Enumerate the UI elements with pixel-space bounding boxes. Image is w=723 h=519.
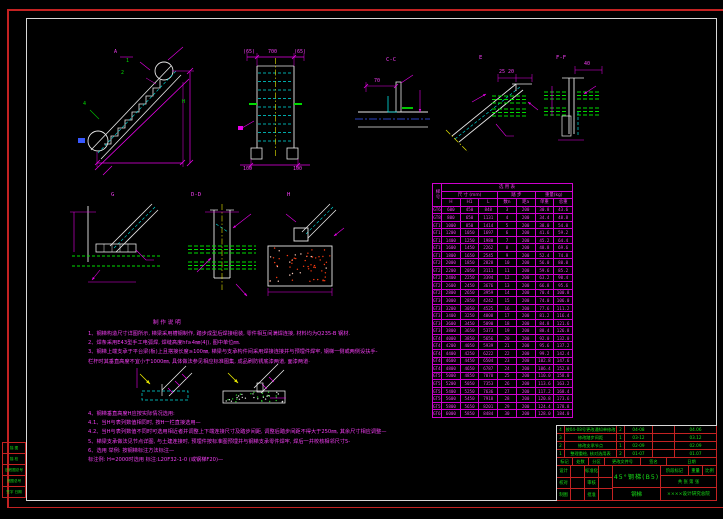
table-cell: 16: [498, 304, 517, 312]
table-cell: 4450: [460, 357, 479, 365]
table-cell: 6: [498, 229, 517, 237]
drawing-sheet: A 1 2 4 H (65) 700 (65) 100 100 C-C E F-…: [0, 0, 723, 519]
table-row: GT202000185028281020056.080.0: [433, 259, 573, 267]
sheet-count: 共 张 第 张: [661, 476, 717, 488]
detail-e: [446, 74, 538, 152]
table-cell: 200: [516, 229, 535, 237]
ladder-elevation-view: [78, 47, 194, 175]
table-cell: 29: [498, 402, 517, 410]
signature-cell: [571, 478, 585, 490]
table-cell: GT38: [433, 327, 442, 335]
table-col-header: 数n: [498, 199, 517, 207]
revision-row: 2修改支承节点102-0902.09: [557, 442, 717, 450]
table-cell: 6787: [479, 365, 498, 373]
table-cell: 3676: [479, 282, 498, 290]
revision-cell: 03-12: [625, 434, 653, 442]
table-cell: 2000: [442, 259, 461, 267]
dim-e: 25 20: [499, 70, 514, 75]
table-cell: 1414: [479, 221, 498, 229]
change-header-cell: 签名: [641, 458, 667, 466]
revision-cell: 03.12: [675, 434, 717, 442]
revision-cell: 4: [557, 426, 565, 434]
table-cell: 200: [516, 357, 535, 365]
table-cell: 200: [516, 342, 535, 350]
revision-cell: 01.07: [675, 450, 717, 458]
front-bottom-dim-right: 100: [293, 167, 302, 172]
table-cell: 2850: [460, 297, 479, 305]
revision-row: 1整理重绘, 核对选用表201-0701.07: [557, 450, 717, 458]
table-cell: 21: [498, 342, 517, 350]
table-cell: 81.2: [535, 312, 554, 320]
table-side-title: 梯号: [433, 184, 442, 207]
table-cell: 2600: [442, 282, 461, 290]
table-cell: 52.4: [535, 251, 554, 259]
revision-cell: [653, 442, 675, 450]
table-cell: 5650: [460, 402, 479, 410]
table-row: GT88006501131420034.448.8: [433, 214, 573, 222]
table-cell: 95.6: [554, 282, 573, 290]
table-cell: 1450: [460, 244, 479, 252]
table-cell: 5800: [442, 402, 461, 410]
table-cell: 200: [516, 327, 535, 335]
table-cell: GT46: [433, 357, 442, 365]
table-cell: 4000: [442, 334, 461, 342]
table-cell: 54.0: [554, 221, 573, 229]
table-cell: 3: [498, 206, 517, 214]
table-row: GT363600345050901820084.8121.6: [433, 319, 573, 327]
table-cell: 137.2: [554, 342, 573, 350]
stage-mark-label: 阶段标记: [661, 466, 689, 476]
table-cell: 848: [479, 206, 498, 214]
table-cell: 30: [498, 410, 517, 418]
table-col-header: L: [479, 199, 498, 207]
table-cell: 2828: [479, 259, 498, 267]
margin-row: 旧底图总号: [3, 465, 25, 476]
table-cell: GT12: [433, 229, 442, 237]
detail-label-e: E: [479, 56, 482, 61]
table-cell: 6222: [479, 350, 498, 358]
table-cell: 158.0: [554, 372, 573, 380]
table-cell: GT40: [433, 334, 442, 342]
front-top-dim-right: (65): [294, 50, 306, 55]
signature-cell: 校对: [557, 478, 571, 490]
table-cell: 200: [516, 221, 535, 229]
signature-cell: 审核: [585, 478, 599, 490]
note-line: 2、焊条采用E43型手工电弧焊, 焊缝高度hf≥4㎜(4|), 图中单位㎜.: [88, 339, 377, 348]
table-cell: 168.4: [554, 387, 573, 395]
table-cell: 74.8: [554, 251, 573, 259]
table-cell: 1000: [442, 221, 461, 229]
note-line: 4.2、当H与表列数值不同时可选用相近者并调整上下端连接尺寸及踏步间距, 调整后…: [88, 428, 386, 437]
height-dim-label: H: [182, 100, 185, 105]
signature-cell: [599, 466, 613, 478]
drawing-subtitle: 钢梯: [613, 488, 661, 501]
table-cell: 6504: [479, 357, 498, 365]
table-cell: 124.4: [535, 402, 554, 410]
table-row: GT6600450848320030.843.6: [433, 206, 573, 214]
balloon-2: 2: [121, 71, 124, 76]
note-sketch-lower-support: [223, 364, 286, 403]
table-row: GT303000285042421520074.0106.0: [433, 297, 573, 305]
table-cell: 4600: [442, 357, 461, 365]
table-col-header: 总重: [554, 199, 573, 207]
table-cell: 6000: [442, 410, 461, 418]
table-cell: 90.4: [554, 274, 573, 282]
table-row: GT1010008501414520038.054.0: [433, 221, 573, 229]
signature-cell: 设计: [557, 466, 571, 478]
table-group-steps: 踏 步: [498, 191, 535, 199]
table-cell: GT16: [433, 244, 442, 252]
revision-cell: 02-09: [625, 442, 653, 450]
table-cell: 2050: [460, 267, 479, 275]
table-cell: GT58: [433, 402, 442, 410]
table-cell: 5000: [442, 372, 461, 380]
scale-label: 比例: [703, 466, 717, 476]
table-cell: 5400: [442, 387, 461, 395]
table-cell: 56.0: [535, 259, 554, 267]
dim-cc: 70: [374, 79, 380, 84]
table-row: GT424200405059392120095.6137.2: [433, 342, 573, 350]
table-cell: 1050: [460, 229, 479, 237]
table-cell: 26: [498, 380, 517, 388]
table-row: GT5454005250763627200117.2168.4: [433, 387, 573, 395]
table-cell: 200: [516, 334, 535, 342]
table-cell: 13: [498, 282, 517, 290]
detail-section-ff: [544, 66, 602, 140]
table-cell: 5850: [460, 410, 479, 418]
table-row: GT282800265039591420070.4100.8: [433, 289, 573, 297]
table-cell: 4: [498, 214, 517, 222]
note-line: 3、钢梯上端支承于平台梁(板)上且搭接长度≥100㎜, 梯梁与支承构件间采用焊接…: [88, 348, 377, 357]
table-cell: 59.6: [535, 267, 554, 275]
table-cell: 4525: [479, 304, 498, 312]
change-header-cell: 分区: [589, 458, 605, 466]
table-cell: 3400: [442, 312, 461, 320]
table-cell: GT10: [433, 221, 442, 229]
detail-h: [268, 204, 344, 296]
table-cell: 5450: [460, 395, 479, 403]
table-cell: 2400: [442, 274, 461, 282]
table-cell: 5656: [479, 334, 498, 342]
table-cell: 74.0: [535, 297, 554, 305]
table-cell: 38.0: [535, 221, 554, 229]
table-cell: 2450: [460, 282, 479, 290]
margin-row: 底图总号: [3, 476, 25, 487]
table-cell: 200: [516, 380, 535, 388]
front-top-dim-mid: 700: [268, 50, 277, 55]
table-cell: 85.2: [554, 267, 573, 275]
table-cell: GT26: [433, 282, 442, 290]
notes-section-2: 4、钢梯垂直高度H应按实际情况选用:4.1、当H与表列数值相同时, 按H一栏直接…: [88, 410, 386, 465]
table-cell: 200: [516, 350, 535, 358]
table-cell: 5250: [460, 387, 479, 395]
table-cell: 25: [498, 372, 517, 380]
note-line: 6、选用 举例: 按钢梯标注方法标注—: [88, 447, 386, 456]
table-cell: 173.6: [554, 395, 573, 403]
note-line: 4.1、当H与表列数值相同时, 按H一栏直接选用—: [88, 419, 386, 428]
table-col-header: 单重: [535, 199, 554, 207]
table-cell: GT36: [433, 319, 442, 327]
table-cell: GT6: [433, 206, 442, 214]
table-cell: 24: [498, 365, 517, 373]
table-cell: 95.6: [535, 342, 554, 350]
table-cell: 7070: [479, 372, 498, 380]
table-cell: 200: [516, 214, 535, 222]
table-row: GT4848004650678724200106.4152.8: [433, 365, 573, 373]
table-cell: 2800: [442, 289, 461, 297]
table-cell: 3959: [479, 289, 498, 297]
table-cell: 800: [442, 214, 461, 222]
table-cell: 48.8: [554, 214, 573, 222]
revision-cell: 修改踏步间距: [565, 434, 617, 442]
revision-row: 4按04-08号更改通知单修改204-0804.06: [557, 426, 717, 434]
table-cell: 121.6: [554, 319, 573, 327]
table-cell: 17: [498, 312, 517, 320]
ladder-front-view: [238, 53, 310, 169]
table-cell: GT32: [433, 304, 442, 312]
note-line: 4、钢梯垂直高度H应按实际情况选用:: [88, 410, 386, 419]
table-cell: 3650: [460, 327, 479, 335]
table-cell: 5200: [442, 380, 461, 388]
table-cell: 102.8: [535, 357, 554, 365]
table-cell: GT52: [433, 380, 442, 388]
table-cell: 1697: [479, 229, 498, 237]
table-cell: 2262: [479, 244, 498, 252]
table-cell: 20: [498, 334, 517, 342]
table-cell: 126.8: [554, 327, 573, 335]
table-cell: 117.2: [535, 387, 554, 395]
table-cell: 200: [516, 319, 535, 327]
table-cell: GT18: [433, 251, 442, 259]
table-row: GT14140012501980720045.264.4: [433, 236, 573, 244]
note-line: 5、梯梁支承做法见节点详图, 与土建连接时, 预埋件按标准图预埋并与钢梯支承零件…: [88, 438, 386, 447]
table-cell: 142.4: [554, 350, 573, 358]
table-cell: 2545: [479, 251, 498, 259]
table-cell: 11: [498, 267, 517, 275]
table-cell: 184.0: [554, 410, 573, 418]
signature-cell: 批准: [585, 489, 599, 501]
table-cell: 3600: [442, 319, 461, 327]
signature-cell: [571, 466, 585, 478]
table-cell: 4800: [442, 365, 461, 373]
balloon-4: 4: [83, 102, 86, 107]
table-cell: 84.8: [535, 319, 554, 327]
signature-cell: [599, 489, 613, 501]
table-cell: GT54: [433, 387, 442, 395]
balloon-1: 1: [126, 59, 129, 64]
signature-cell: [599, 478, 613, 490]
detail-label-g: G: [111, 193, 114, 198]
table-cell: 5090: [479, 319, 498, 327]
revision-cell: 04-08: [625, 426, 653, 434]
drawing-title: 45°钢梯(B5): [613, 466, 661, 488]
table-cell: 5050: [460, 380, 479, 388]
table-cell: 99.2: [535, 350, 554, 358]
table-cell: 3200: [442, 304, 461, 312]
revision-cell: 修改支承节点: [565, 442, 617, 450]
section-label-cc: C-C: [386, 58, 396, 63]
revision-row: 3修改踏步间距103-1203.12: [557, 434, 717, 442]
revision-cell: 04.06: [675, 426, 717, 434]
notes-heading: 制 作 说 明: [153, 318, 181, 326]
dim-ff: 40: [584, 62, 590, 67]
revision-cell: 2: [617, 450, 625, 458]
revision-cell: 3: [557, 434, 565, 442]
selection-table: 梯号 选 用 表 尺 寸 (mm) 踏 步 重量(kg) HH1L数n距a单重总…: [432, 183, 573, 418]
change-header-cell: 处数: [573, 458, 589, 466]
table-cell: 23: [498, 357, 517, 365]
margin-row: 描 图: [3, 443, 25, 454]
table-cell: 4242: [479, 297, 498, 305]
change-header-cell: 标记: [557, 458, 573, 466]
table-cell: 3111: [479, 267, 498, 275]
table-row: GT5252005050735326200113.6163.2: [433, 380, 573, 388]
table-cell: 152.8: [554, 365, 573, 373]
table-cell: 63.2: [535, 274, 554, 282]
table-cell: 8201: [479, 402, 498, 410]
table-cell: 200: [516, 206, 535, 214]
table-cell: 3850: [460, 334, 479, 342]
table-cell: 19: [498, 327, 517, 335]
table-cell: 650: [460, 214, 479, 222]
table-cell: 3050: [460, 304, 479, 312]
table-cell: 4808: [479, 312, 498, 320]
signature-cell: [571, 489, 585, 501]
table-cell: 200: [516, 304, 535, 312]
table-row: GT404000385056562020092.0132.0: [433, 334, 573, 342]
table-cell: 30.8: [535, 206, 554, 214]
table-cell: 1131: [479, 214, 498, 222]
table-cell: 106.4: [535, 365, 554, 373]
table-cell: 9: [498, 251, 517, 259]
table-cell: GT60: [433, 410, 442, 418]
table-row: GT6060005850848430200128.0184.0: [433, 410, 573, 418]
table-cell: 48.8: [535, 244, 554, 252]
detail-label-h: H: [287, 193, 290, 198]
table-cell: 41.6: [535, 229, 554, 237]
table-cell: 100.8: [554, 289, 573, 297]
table-cell: 8: [498, 244, 517, 252]
revision-cell: 整理重绘, 核对选用表: [565, 450, 617, 458]
table-cell: 1650: [460, 251, 479, 259]
table-cell: 80.0: [554, 259, 573, 267]
table-cell: 450: [460, 206, 479, 214]
revision-cell: [653, 426, 675, 434]
table-cell: 27: [498, 387, 517, 395]
table-row: GT383800365053731920088.4126.8: [433, 327, 573, 335]
table-cell: GT42: [433, 342, 442, 350]
table-cell: 113.6: [535, 380, 554, 388]
table-group-weight: 重量(kg): [535, 191, 572, 199]
revision-cell: 02.09: [675, 442, 717, 450]
table-cell: 10: [498, 259, 517, 267]
table-cell: 600: [442, 206, 461, 214]
table-row: GT5656005450791828200120.8173.6: [433, 395, 573, 403]
table-cell: 200: [516, 395, 535, 403]
table-cell: 4650: [460, 365, 479, 373]
table-cell: 12: [498, 274, 517, 282]
table-cell: 4850: [460, 372, 479, 380]
selection-table-body: GT6600450848320030.843.6GT88006501131420…: [433, 206, 573, 417]
table-cell: 111.2: [554, 304, 573, 312]
table-cell: 1200: [442, 229, 461, 237]
table-cell: 200: [516, 387, 535, 395]
table-row: GT5050004850707025200110.0158.0: [433, 372, 573, 380]
detail-section-cc: [355, 75, 430, 127]
table-cell: 200: [516, 402, 535, 410]
table-cell: 5: [498, 221, 517, 229]
table-cell: 200: [516, 259, 535, 267]
table-cell: 18: [498, 319, 517, 327]
table-cell: 2650: [460, 289, 479, 297]
table-cell: 178.8: [554, 402, 573, 410]
notes-section-1: 1、钢梯构造尺寸详图所示, 梯梁采用槽钢制作, 踏步成型后焊接组装, 零件相互间…: [88, 330, 377, 367]
revision-cell: 1: [557, 450, 565, 458]
table-cell: GT56: [433, 395, 442, 403]
table-cell: 3394: [479, 274, 498, 282]
title-block: 4按04-08号更改通知单修改204-0804.063修改踏步间距103-120…: [556, 425, 716, 500]
table-col-header: 距a: [516, 199, 535, 207]
table-cell: 163.2: [554, 380, 573, 388]
table-cell: GT14: [433, 236, 442, 244]
table-cell: GT20: [433, 259, 442, 267]
table-cell: 4050: [460, 342, 479, 350]
table-cell: 1980: [479, 236, 498, 244]
table-cell: GT28: [433, 289, 442, 297]
table-cell: 66.8: [535, 282, 554, 290]
table-row: GT242400225033941220063.290.4: [433, 274, 573, 282]
table-cell: 200: [516, 365, 535, 373]
table-cell: 200: [516, 251, 535, 259]
table-cell: 200: [516, 372, 535, 380]
table-cell: 5600: [442, 395, 461, 403]
table-cell: 200: [516, 312, 535, 320]
table-cell: GT50: [433, 372, 442, 380]
table-cell: 28: [498, 395, 517, 403]
note-line: 标注例: H=2000时选用 标注:L20F32-1-0 (或钢梯F20)—: [88, 456, 386, 465]
table-cell: 200: [516, 297, 535, 305]
table-cell: 1400: [442, 236, 461, 244]
table-cell: GT30: [433, 297, 442, 305]
table-row: GT16160014502262820048.869.6: [433, 244, 573, 252]
signature-cell: 制图: [557, 489, 571, 501]
table-cell: 200: [516, 244, 535, 252]
table-cell: GT8: [433, 214, 442, 222]
table-cell: 1800: [442, 251, 461, 259]
table-cell: 4400: [442, 350, 461, 358]
section-label-dd: D-D: [191, 193, 201, 198]
front-top-dim-left: (65): [243, 50, 255, 55]
table-cell: 1850: [460, 259, 479, 267]
table-cell: 3000: [442, 297, 461, 305]
table-cell: 200: [516, 282, 535, 290]
change-header-cell: 更改文件号: [605, 458, 641, 466]
table-cell: 147.6: [554, 357, 573, 365]
table-cell: 77.6: [535, 304, 554, 312]
table-cell: 4200: [442, 342, 461, 350]
table-cell: 128.0: [535, 410, 554, 418]
table-cell: 7353: [479, 380, 498, 388]
table-row: GT262600245036761320066.895.6: [433, 282, 573, 290]
revision-cell: [653, 434, 675, 442]
table-cell: 2250: [460, 274, 479, 282]
table-cell: 92.0: [535, 334, 554, 342]
revision-cell: 2: [617, 426, 625, 434]
margin-row: 签字 日期: [3, 487, 25, 498]
table-cell: 3450: [460, 319, 479, 327]
table-cell: 110.0: [535, 372, 554, 380]
table-cell: GT48: [433, 365, 442, 373]
